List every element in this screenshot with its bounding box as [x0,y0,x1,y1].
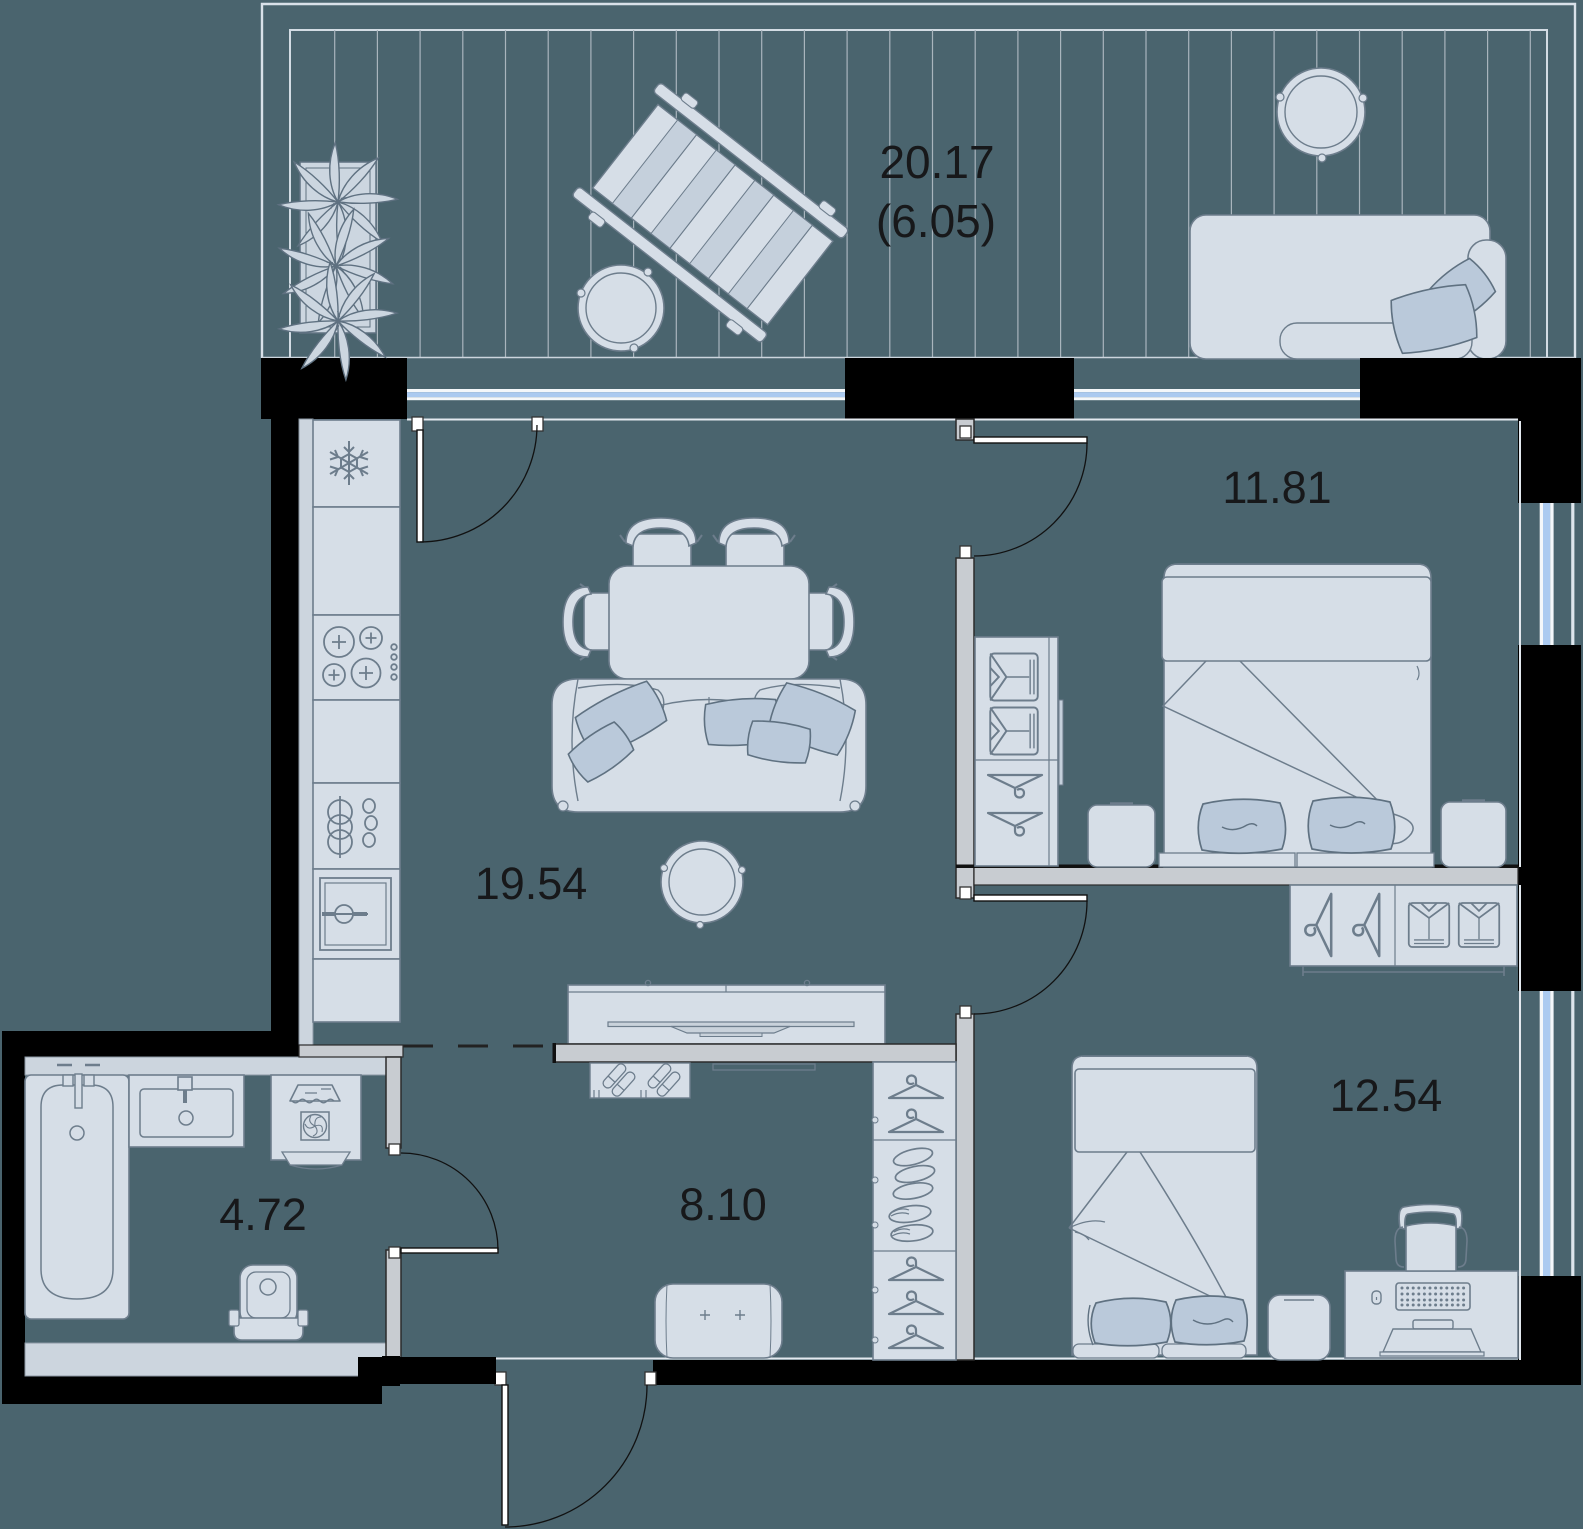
svg-text:20.17: 20.17 [879,136,994,188]
svg-text:19.54: 19.54 [475,858,588,909]
svg-text:4.72: 4.72 [219,1189,307,1240]
svg-text:12.54: 12.54 [1330,1070,1443,1121]
svg-text:(6.05): (6.05) [876,195,996,247]
svg-text:11.81: 11.81 [1222,462,1331,513]
svg-text:8.10: 8.10 [679,1179,767,1230]
